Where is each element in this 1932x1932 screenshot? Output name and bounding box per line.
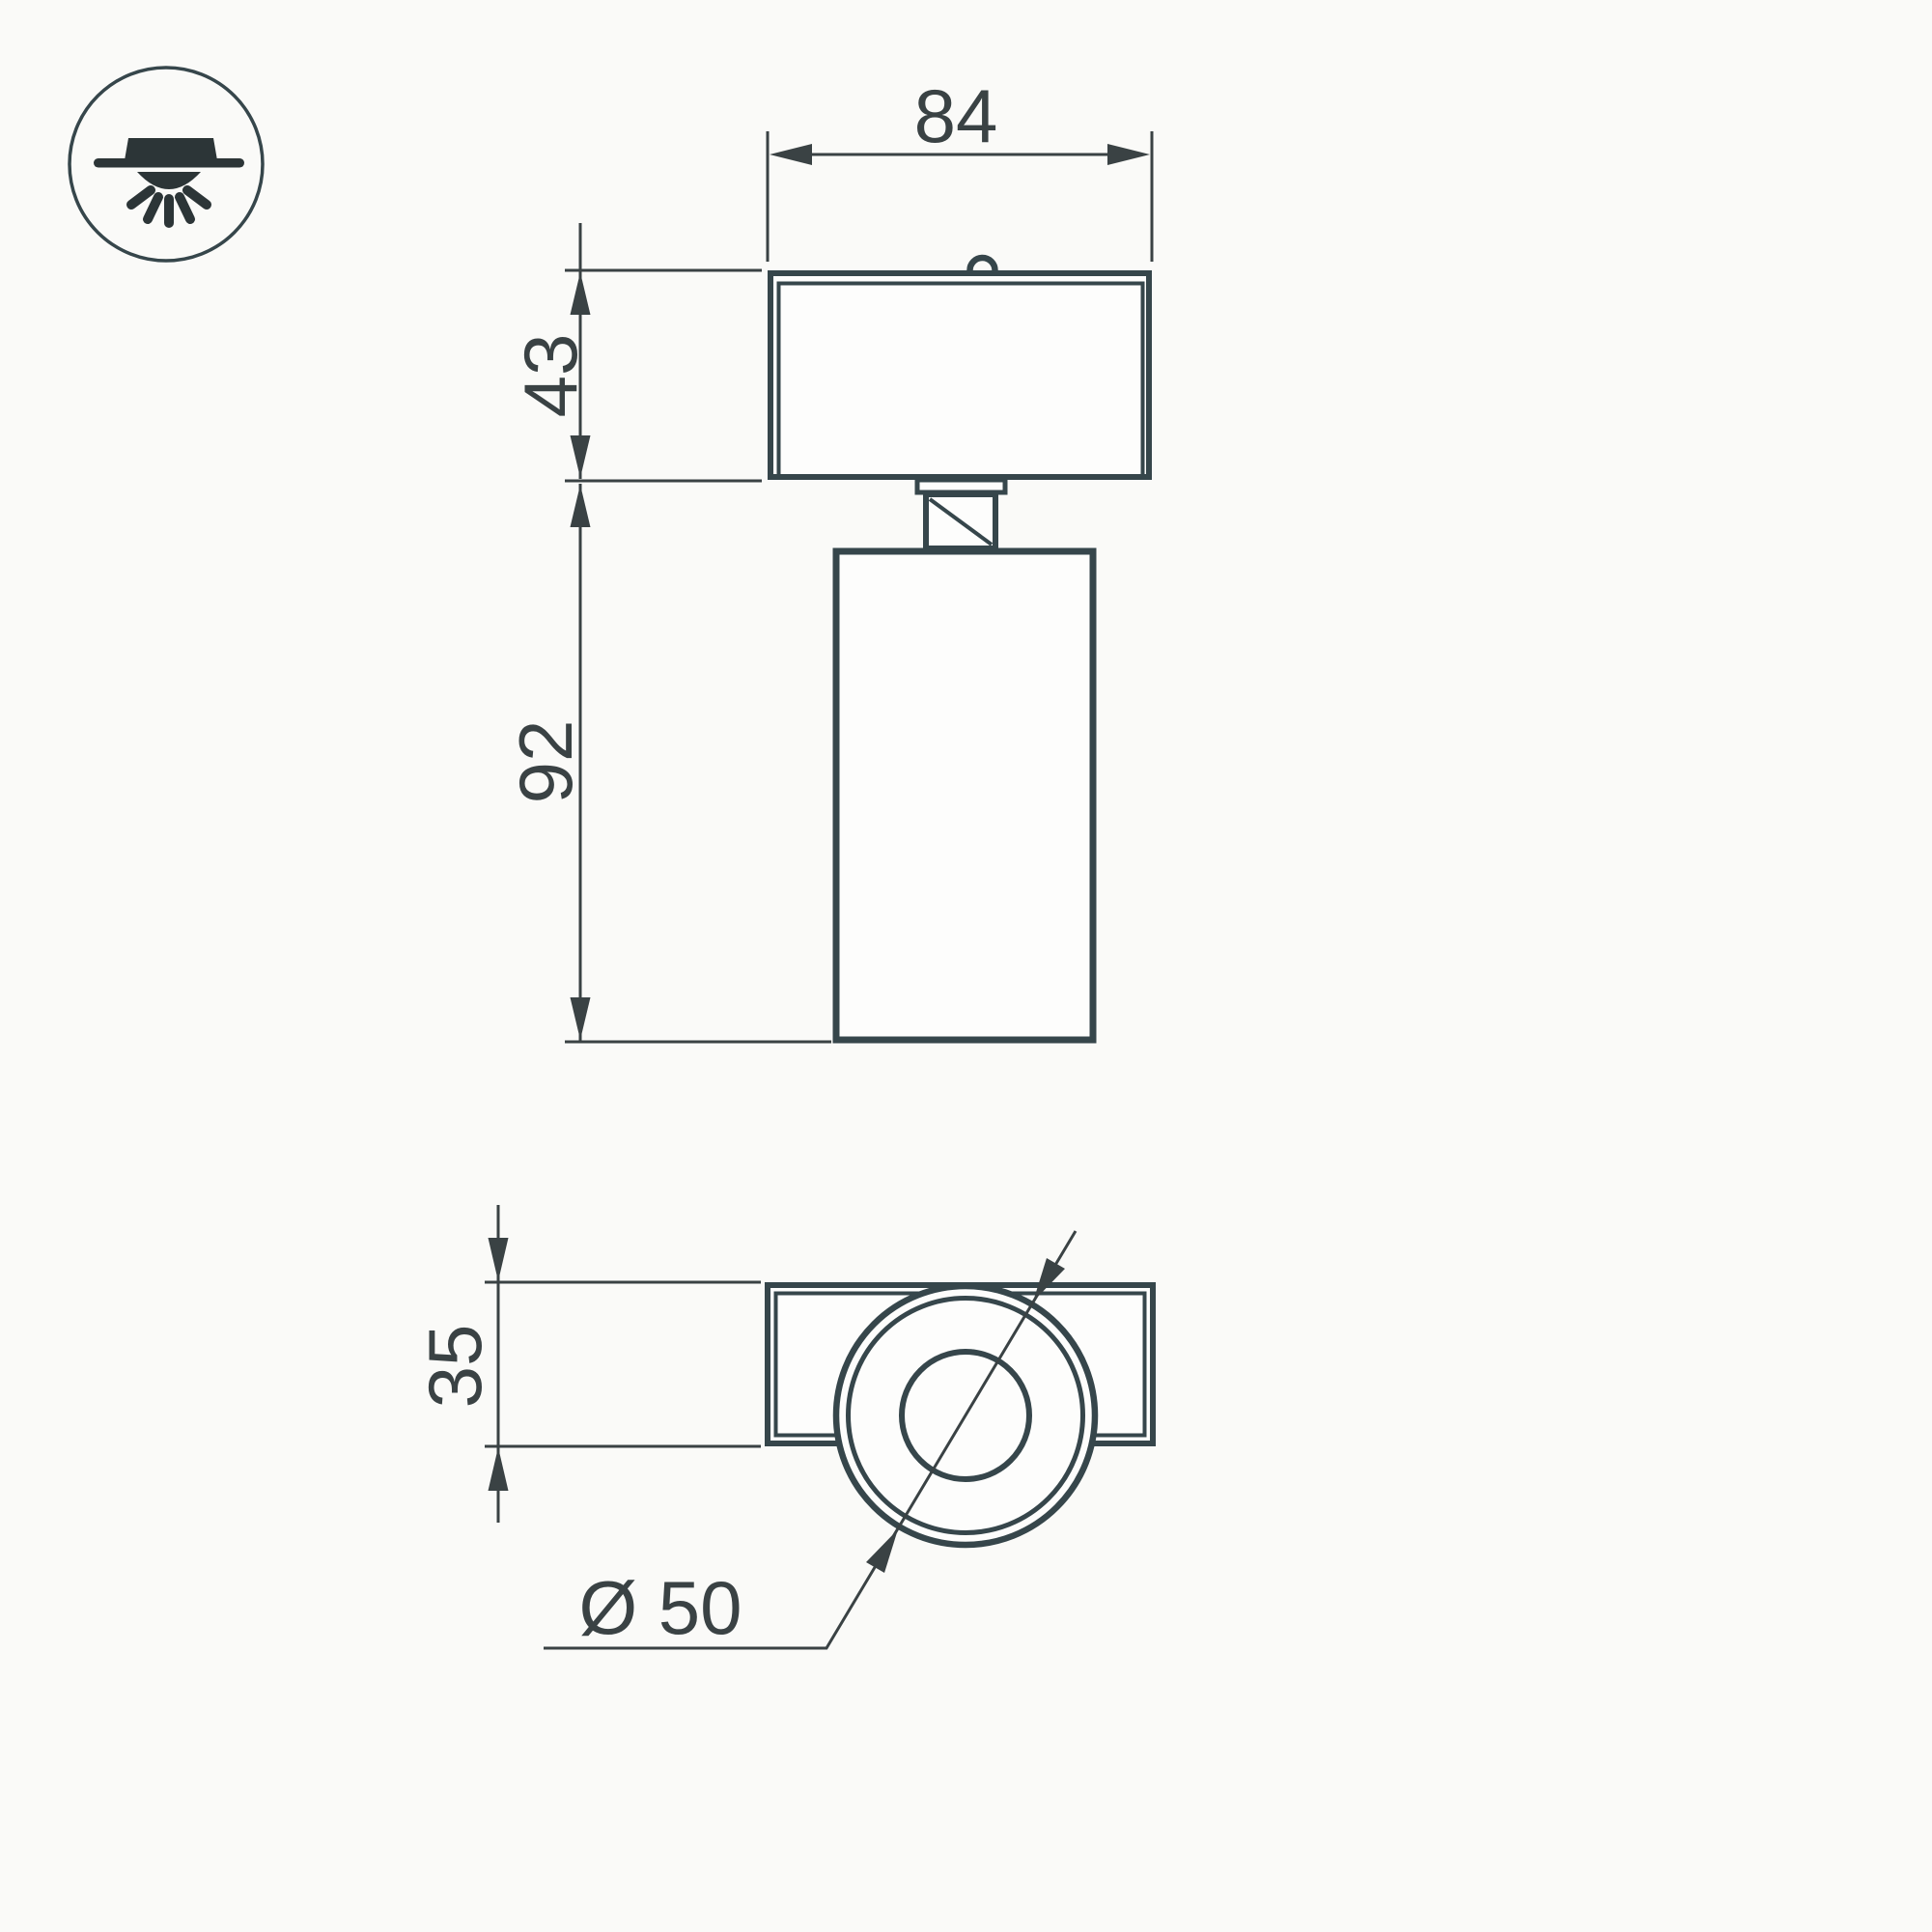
arrow-down-icon bbox=[571, 435, 591, 478]
front-elevation-view bbox=[770, 258, 1149, 1040]
cylinder-body-outline bbox=[836, 551, 1093, 1040]
dimension-label: 43 bbox=[508, 334, 593, 418]
pivot-collar bbox=[917, 480, 1005, 492]
dimension-35: 35 bbox=[412, 1205, 761, 1523]
dimension-label: 84 bbox=[914, 73, 998, 158]
mount-type-icon bbox=[70, 68, 263, 261]
arrow-up-icon bbox=[489, 1447, 509, 1491]
light-dome-icon bbox=[137, 172, 201, 189]
arrow-left-icon bbox=[770, 144, 812, 165]
arrow-up-icon bbox=[571, 485, 591, 527]
dimension-label: 35 bbox=[412, 1325, 497, 1409]
drawing-canvas: 84 43 92 35 Ø 50 bbox=[0, 0, 1932, 1932]
arrow-diagonal-icon bbox=[866, 1529, 898, 1573]
bottom-plan-view bbox=[768, 1285, 1153, 1545]
arrow-right-icon bbox=[1107, 144, 1150, 165]
dimension-label: Ø 50 bbox=[578, 1565, 742, 1650]
dimension-label: 92 bbox=[503, 720, 588, 804]
dimension-43: 43 bbox=[508, 223, 762, 481]
dimension-84: 84 bbox=[768, 73, 1152, 262]
top-knob bbox=[970, 258, 995, 270]
arrow-down-icon bbox=[571, 997, 591, 1040]
ceiling-line-icon bbox=[94, 158, 244, 168]
arrow-up-icon bbox=[571, 272, 591, 315]
dimension-92: 92 bbox=[503, 484, 831, 1042]
head-housing-outline bbox=[770, 273, 1149, 477]
fixture-body-icon bbox=[125, 138, 217, 160]
light-rays-icon bbox=[131, 190, 207, 223]
technical-drawing: 84 43 92 35 Ø 50 bbox=[0, 0, 1932, 1932]
arrow-down-icon bbox=[489, 1238, 509, 1281]
